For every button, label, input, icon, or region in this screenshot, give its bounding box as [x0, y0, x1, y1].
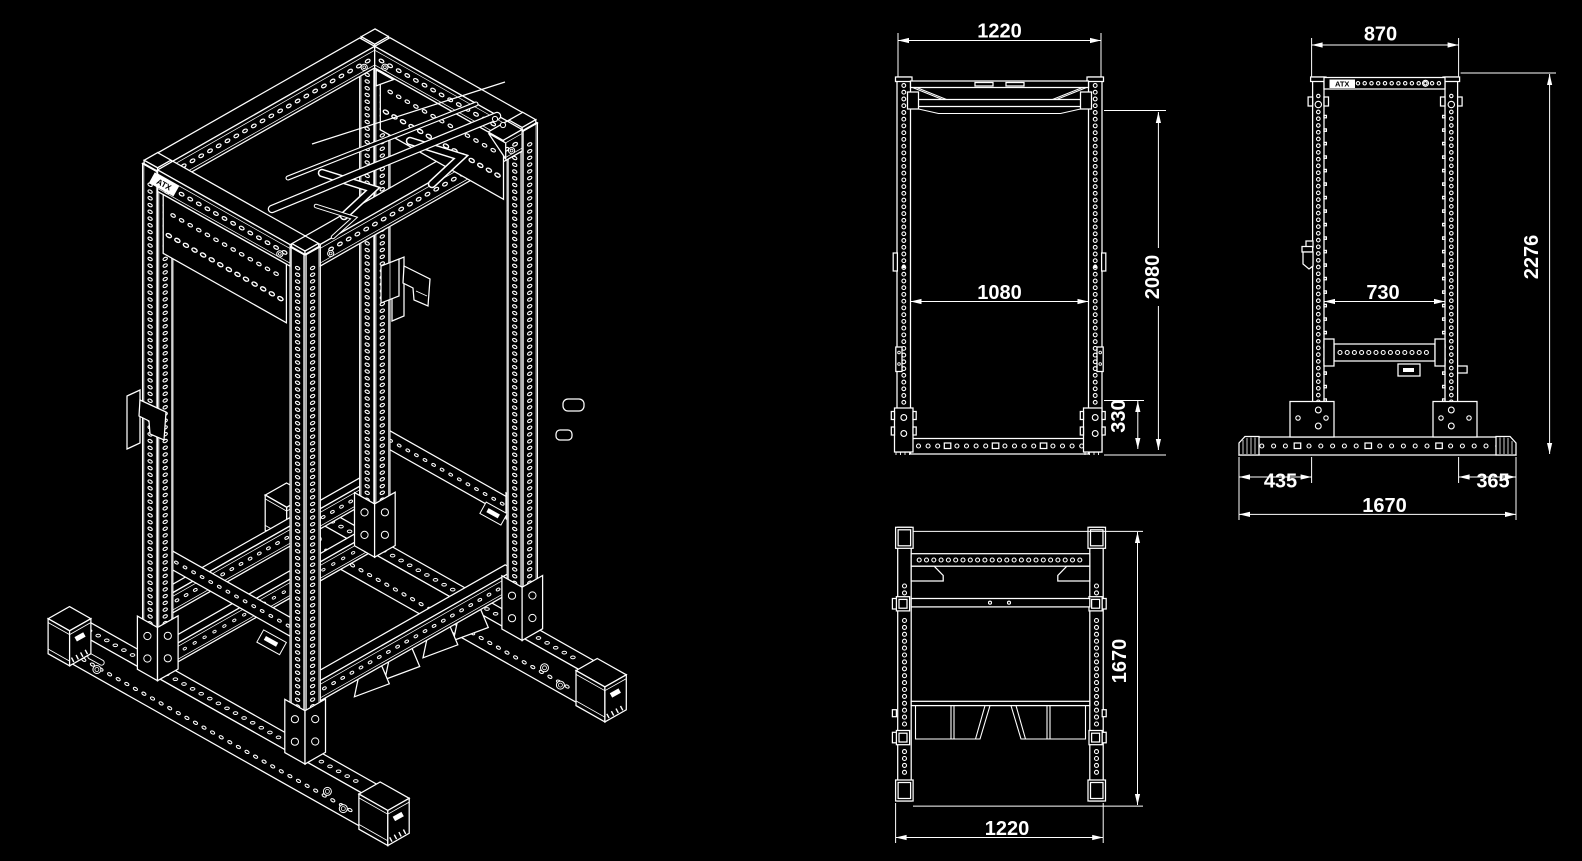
- svg-text:870: 870: [1364, 24, 1397, 46]
- svg-text:365: 365: [1476, 471, 1509, 493]
- svg-text:1220: 1220: [985, 818, 1030, 840]
- svg-text:2276: 2276: [1521, 235, 1543, 280]
- svg-text:1080: 1080: [977, 282, 1022, 304]
- svg-text:1670: 1670: [1362, 495, 1407, 517]
- svg-text:ATX: ATX: [1335, 80, 1349, 89]
- svg-text:1670: 1670: [1109, 639, 1131, 684]
- svg-text:435: 435: [1264, 471, 1297, 493]
- svg-text:730: 730: [1366, 282, 1399, 304]
- svg-text:1220: 1220: [977, 21, 1022, 43]
- svg-text:2080: 2080: [1142, 255, 1164, 300]
- svg-text:330: 330: [1108, 399, 1130, 432]
